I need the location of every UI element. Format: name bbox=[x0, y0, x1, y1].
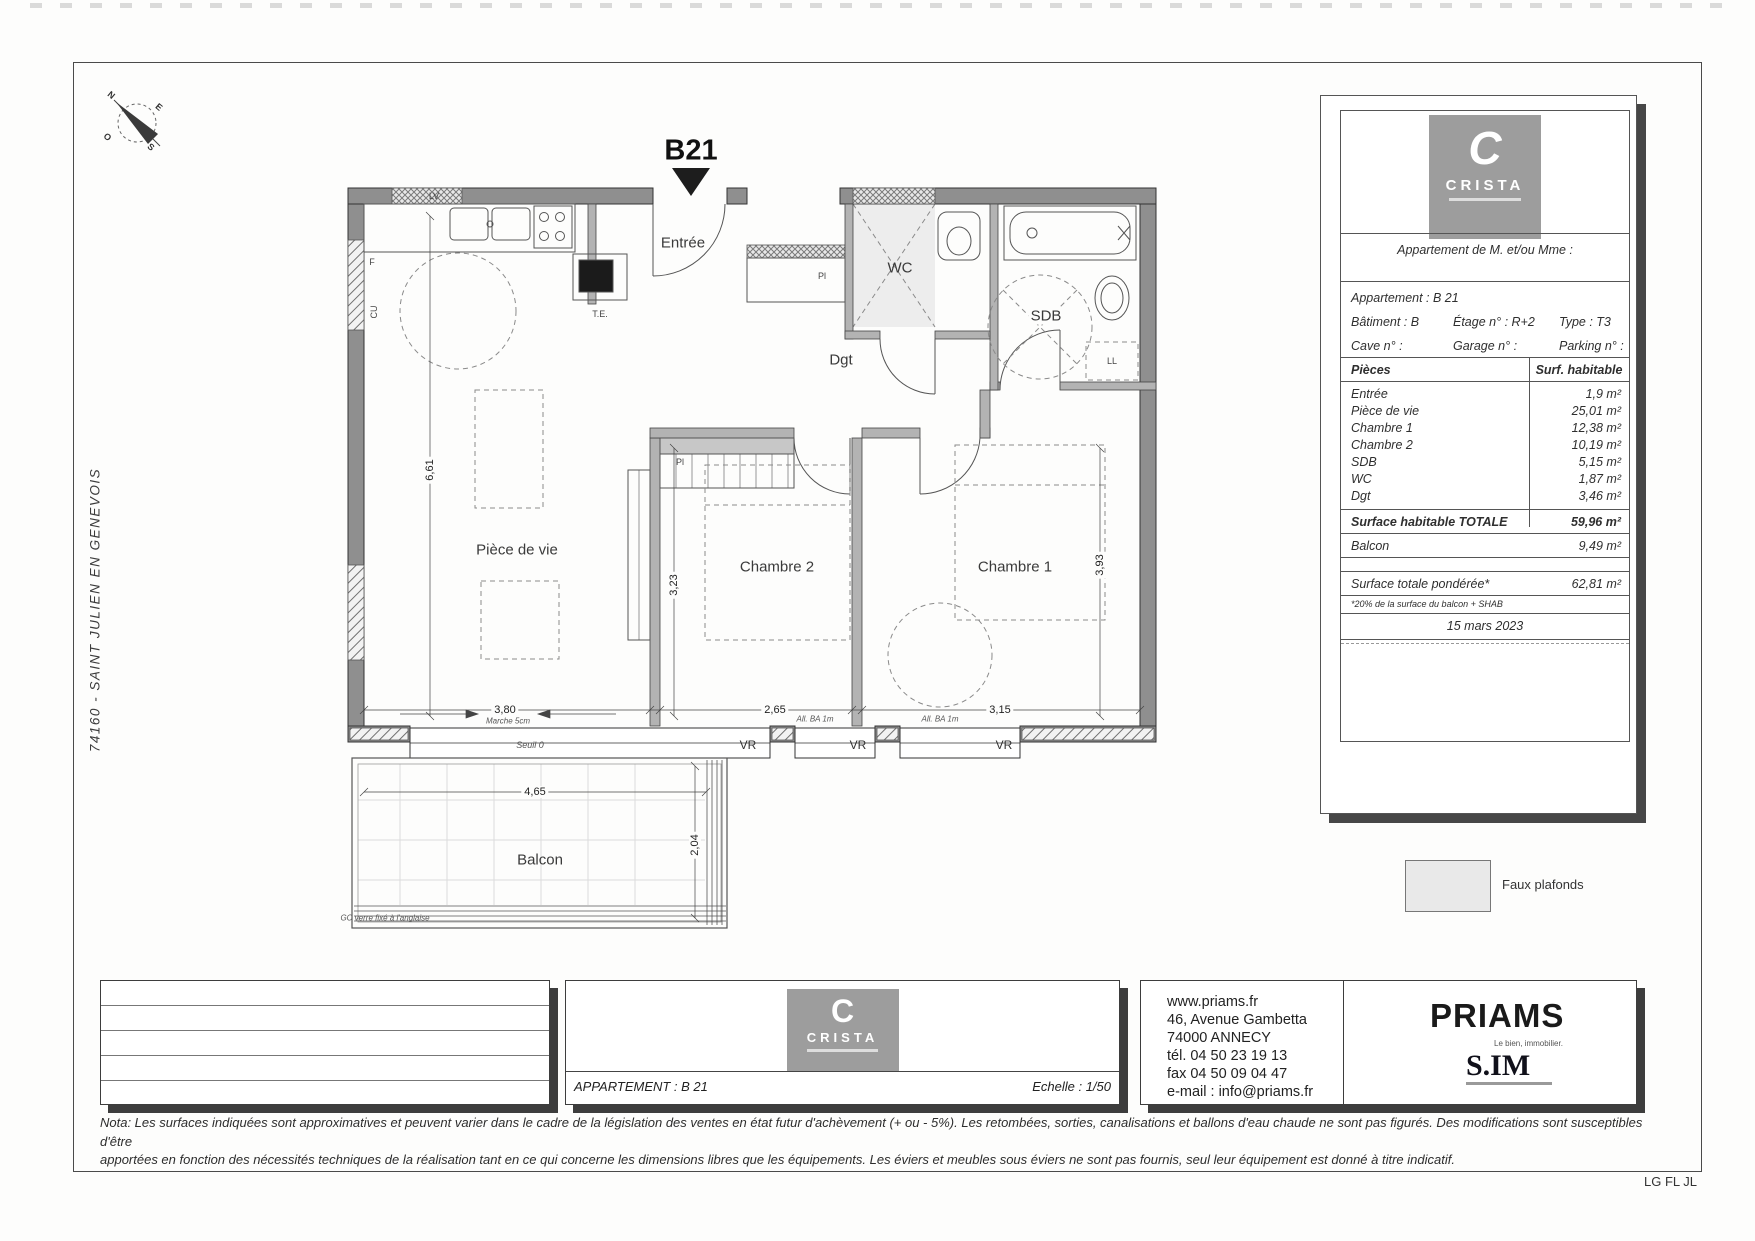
nota-line-1: Nota: Les surfaces indiquées sont approx… bbox=[100, 1114, 1660, 1151]
owner-line: Appartement de M. et/ou Mme : bbox=[1341, 243, 1629, 257]
strip-divider bbox=[566, 1071, 1119, 1072]
row-label: Chambre 2 bbox=[1351, 438, 1413, 452]
contact-street: 46, Avenue Gambetta bbox=[1167, 1011, 1313, 1029]
faux-plafonds-label: Faux plafonds bbox=[1502, 877, 1584, 892]
room-label-dgt: Dgt bbox=[829, 352, 852, 369]
note-allba-2: All. BA 1m bbox=[921, 715, 958, 724]
note-vr-3: VR bbox=[996, 738, 1013, 752]
dim-chambre2-height: 3,23 bbox=[668, 571, 680, 598]
revision-row-line bbox=[101, 1055, 549, 1056]
room-label-sdb: SDB bbox=[1029, 308, 1064, 325]
divider bbox=[1341, 509, 1629, 510]
plan-title: B21 bbox=[664, 135, 717, 168]
room-label-chambre2: Chambre 2 bbox=[740, 559, 814, 576]
dim-balcony-depth: 2,04 bbox=[689, 831, 701, 858]
furniture-dashed bbox=[400, 253, 1138, 707]
crista-logo: C CRISTA bbox=[1429, 115, 1541, 239]
hatched-walls bbox=[348, 188, 1154, 740]
row-label: WC bbox=[1351, 472, 1372, 486]
dim-chambre1-width: 3,15 bbox=[986, 704, 1013, 716]
priams-tagline: Le bien, immobilier. bbox=[1494, 1039, 1563, 1048]
label-ll: LL bbox=[1107, 356, 1117, 366]
room-label-piece-de-vie: Pièce de vie bbox=[476, 542, 558, 559]
room-label-chambre1: Chambre 1 bbox=[978, 559, 1052, 576]
label-pl-hall: Pl bbox=[818, 271, 826, 281]
dim-chambre1-height: 3,93 bbox=[1094, 551, 1106, 578]
drafter-initials: LG FL JL bbox=[1644, 1174, 1697, 1189]
revision-row-line bbox=[101, 1005, 549, 1006]
priams-box: PRIAMS Le bien, immobilier. S.IM bbox=[1343, 980, 1637, 1105]
note-seuil: Seuil 0 bbox=[516, 740, 544, 750]
contact-phone: tél. 04 50 23 19 13 bbox=[1167, 1047, 1313, 1065]
room-label-wc: WC bbox=[888, 260, 913, 277]
total-label: Surface habitable TOTALE bbox=[1351, 515, 1508, 529]
row-value: 1,87 m² bbox=[1529, 472, 1621, 486]
info-floor: Étage n° : R+2 bbox=[1453, 315, 1535, 329]
note-vr-1: VR bbox=[740, 738, 757, 752]
divider-dashed bbox=[1341, 643, 1629, 644]
note-allba-1: All. BA 1m bbox=[796, 715, 833, 724]
revision-row-line bbox=[101, 1080, 549, 1081]
contact-website: www.priams.fr bbox=[1167, 993, 1313, 1011]
header-underline bbox=[1341, 381, 1629, 382]
row-value: 10,19 m² bbox=[1529, 438, 1621, 452]
crista-tagline-bar bbox=[1449, 198, 1521, 201]
room-label-balcon: Balcon bbox=[517, 852, 563, 869]
dim-balcony-width: 4,65 bbox=[521, 786, 548, 798]
note-gc: GC verre fixé à l'anglaise bbox=[340, 914, 429, 923]
nota-text: Nota: Les surfaces indiquées sont approx… bbox=[100, 1114, 1660, 1170]
divider bbox=[1341, 571, 1629, 572]
row-label: SDB bbox=[1351, 455, 1377, 469]
sim-subline bbox=[1466, 1082, 1552, 1085]
label-cu: CU bbox=[369, 306, 379, 319]
table-top-rule bbox=[1341, 357, 1629, 358]
footnote: *20% de la surface du balcon + SHAB bbox=[1351, 599, 1503, 609]
priams-logo: PRIAMS bbox=[1430, 997, 1564, 1035]
crista-name: CRISTA bbox=[787, 1030, 899, 1045]
dim-living-width: 3,80 bbox=[491, 704, 518, 716]
sim-name: S.IM bbox=[1466, 1049, 1530, 1082]
balcony-linework bbox=[352, 758, 727, 928]
note-vr-2: VR bbox=[850, 738, 867, 752]
footer-scale-label: Echelle : 1/50 bbox=[1032, 1079, 1111, 1094]
dim-chambre2-width: 2,65 bbox=[761, 704, 788, 716]
divider bbox=[1341, 613, 1629, 614]
row-label: Dgt bbox=[1351, 489, 1370, 503]
nota-line-2: apportées en fonction des nécessités tec… bbox=[100, 1151, 1660, 1170]
crista-footer-logo: C CRISTA bbox=[787, 989, 899, 1071]
contact-fax: fax 04 50 09 04 47 bbox=[1167, 1065, 1313, 1083]
info-type: Type : T3 bbox=[1559, 315, 1611, 329]
row-value: 25,01 m² bbox=[1529, 404, 1621, 418]
col-header-pieces: Pièces bbox=[1351, 363, 1391, 377]
label-pl-chambre2: Pl bbox=[676, 457, 684, 467]
faux-plafonds-swatch bbox=[1405, 860, 1491, 912]
balcony-label: Balcon bbox=[1351, 539, 1389, 553]
divider bbox=[1341, 233, 1629, 234]
info-apartment: Appartement : B 21 bbox=[1351, 291, 1459, 305]
info-cave: Cave n° : bbox=[1351, 339, 1403, 353]
info-building: Bâtiment : B bbox=[1351, 315, 1419, 329]
label-te: T.E. bbox=[592, 309, 608, 319]
row-value: 1,9 m² bbox=[1529, 387, 1621, 401]
sim-logo: S.IM bbox=[1466, 1051, 1552, 1085]
note-marche: Marche 5cm bbox=[486, 717, 530, 726]
contact-email: e-mail : info@priams.fr bbox=[1167, 1083, 1313, 1101]
entrance-arrow-icon bbox=[672, 168, 710, 196]
revision-row-line bbox=[101, 1030, 549, 1031]
cr-tagline-bar bbox=[807, 1049, 879, 1052]
crista-name: CRISTA bbox=[1429, 177, 1541, 194]
crista-c-icon: C bbox=[1429, 125, 1541, 171]
title-block-inner: C CRISTA Appartement de M. et/ou Mme : A… bbox=[1340, 110, 1630, 742]
col-header-surface: Surf. habitable bbox=[1529, 363, 1629, 377]
footer-apartment-label: APPARTEMENT : B 21 bbox=[574, 1079, 708, 1094]
row-label: Entrée bbox=[1351, 387, 1388, 401]
contact-city: 74000 ANNECY bbox=[1167, 1029, 1313, 1047]
room-label-entree: Entrée bbox=[661, 235, 705, 252]
revision-table-box bbox=[100, 980, 550, 1105]
divider bbox=[1341, 557, 1629, 558]
row-label: Pièce de vie bbox=[1351, 404, 1419, 418]
weighted-label: Surface totale pondérée* bbox=[1351, 577, 1489, 591]
crista-c-icon: C bbox=[787, 995, 899, 1027]
info-garage: Garage n° : bbox=[1453, 339, 1517, 353]
row-value: 12,38 m² bbox=[1529, 421, 1621, 435]
total-value: 59,96 m² bbox=[1529, 515, 1621, 529]
info-parking: Parking n° : bbox=[1559, 339, 1624, 353]
row-value: 5,15 m² bbox=[1529, 455, 1621, 469]
label-f: F bbox=[369, 257, 375, 267]
balcony-value: 9,49 m² bbox=[1529, 539, 1621, 553]
divider bbox=[1341, 595, 1629, 596]
label-lv: LV bbox=[429, 191, 439, 201]
divider bbox=[1341, 281, 1629, 282]
drawing-sheet: 74160 - SAINT JULIEN EN GENEVOIS N E S O bbox=[0, 0, 1755, 1241]
drawing-id-box: C CRISTA APPARTEMENT : B 21 Echelle : 1/… bbox=[565, 980, 1120, 1105]
weighted-value: 62,81 m² bbox=[1529, 577, 1621, 591]
date: 15 mars 2023 bbox=[1341, 619, 1629, 633]
divider bbox=[1341, 533, 1629, 534]
row-label: Chambre 1 bbox=[1351, 421, 1413, 435]
windows bbox=[410, 728, 1020, 758]
contact-lines: www.priams.fr 46, Avenue Gambetta 74000 … bbox=[1167, 993, 1313, 1101]
divider bbox=[1341, 639, 1629, 640]
dim-living-height: 6,61 bbox=[424, 456, 436, 483]
contact-box: www.priams.fr 46, Avenue Gambetta 74000 … bbox=[1140, 980, 1345, 1105]
row-value: 3,46 m² bbox=[1529, 489, 1621, 503]
